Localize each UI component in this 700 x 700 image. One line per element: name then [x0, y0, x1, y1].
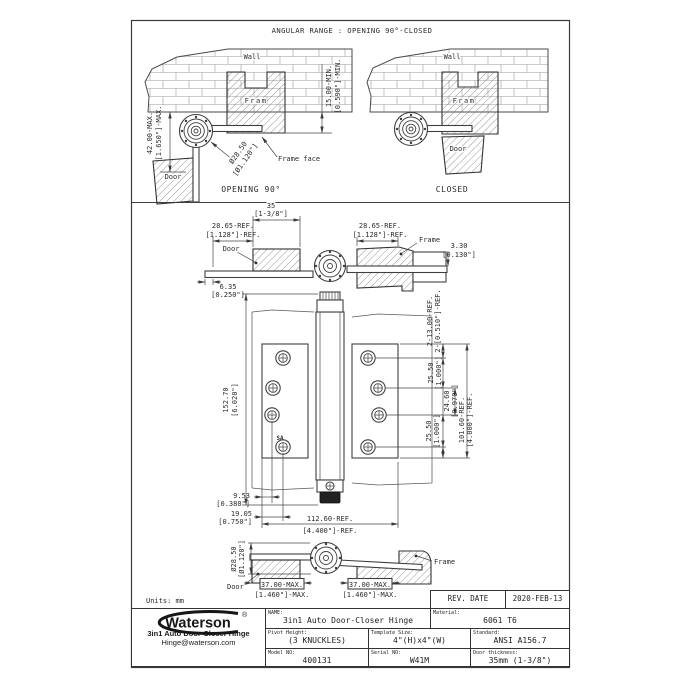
- label-door-section-bottom: Door: [227, 583, 244, 591]
- dim-2865-right-in: [1.128"]-REF.: [353, 231, 408, 239]
- standard-cell: Standard: ANSI A156.7: [471, 629, 569, 649]
- standard-label: Standard:: [471, 629, 569, 636]
- dim-953-mm: 9.53: [233, 492, 250, 500]
- label-sa: SA: [277, 436, 284, 442]
- caption-closed: CLOSED: [436, 185, 469, 194]
- drawing-page: ANGULAR RANGE : OPENING 90°-CLOSED Wall …: [0, 0, 700, 700]
- model-no-value: 400131: [266, 656, 368, 666]
- material-label: Material:: [431, 609, 569, 616]
- dim-2550-bot-in: [1.000"]: [433, 414, 441, 448]
- label-frame-section-top: Frame: [419, 236, 440, 244]
- dim-10160-mm: 101.60-REF.: [458, 397, 466, 443]
- material-cell: Material: 6061 T6: [431, 609, 569, 629]
- door-thickness-value: 35mm (1-3/8"): [471, 656, 569, 666]
- logo-cell: Waterson ® 3in1 Auto Door-Closer Hinge H…: [132, 609, 266, 666]
- dim-holes-in: 2-[0.510"]-REF.: [434, 289, 442, 352]
- model-no-label: Model NO:: [266, 649, 368, 656]
- dim-330-in: [0.130"]: [442, 251, 476, 259]
- model-no-cell: Model NO: 400131: [266, 649, 369, 666]
- dim-11260-mm: 112.60-REF.: [307, 515, 353, 523]
- label-frame-left: Fram: [245, 97, 268, 105]
- dim-35-mm: 35: [267, 202, 275, 210]
- dim-37-right-in: [1.460"]-MAX.: [343, 591, 398, 599]
- dim-953-in: [0.380"]: [216, 500, 250, 508]
- pivot-height-value: (3 KNUCKLES): [266, 636, 368, 646]
- dim-635-in: [0.250"]: [211, 291, 245, 299]
- dim-15270-in: [6.020"]: [231, 383, 239, 417]
- template-size-cell: Template Size: 4"(H)x4"(W): [369, 629, 471, 649]
- dim-2550-top-mm: 25.50: [427, 362, 435, 383]
- dim-2460-mm: 24.60: [443, 390, 451, 411]
- caption-opening-90: OPENING 90°: [221, 185, 281, 194]
- rev-date-value: 2020-FEB-13: [506, 591, 569, 608]
- dim-35-in: [1-3/8"]: [254, 210, 288, 218]
- rev-date-row: REV. DATE 2020-FEB-13: [430, 590, 570, 609]
- drawing-sheet: ANGULAR RANGE : OPENING 90°-CLOSED Wall …: [0, 0, 700, 700]
- template-size-value: 4"(H)x4"(W): [369, 636, 470, 646]
- units-label: Units: mm: [146, 597, 184, 605]
- serial-no-value: W41M: [369, 656, 470, 666]
- label-door-right: Door: [450, 145, 467, 153]
- dim-2550-top-in: [1.000"]: [435, 356, 443, 390]
- label-wall-right: Wall: [444, 53, 461, 61]
- label-door-section-top: Door: [223, 245, 240, 253]
- label-door-left: Door: [165, 173, 182, 181]
- title-block: Waterson ® 3in1 Auto Door-Closer Hinge H…: [131, 608, 570, 667]
- dim-1905-in: [0.750"]: [218, 518, 252, 526]
- material-value: 6061 T6: [431, 616, 569, 626]
- hinge-knuckle-section-bottom: [311, 543, 342, 574]
- name-label: NAME:: [266, 609, 430, 616]
- door-thickness-cell: Door thickness: 35mm (1-3/8"): [471, 649, 569, 666]
- pivot-height-label: Pivot Height:: [266, 629, 368, 636]
- dim-37-right-mm: 37.00-MAX.: [349, 581, 391, 589]
- dim-11260-in: [4.400"]-REF.: [303, 527, 358, 535]
- dim-15-min-mm: 15.00-MIN.: [325, 65, 333, 107]
- door-thickness-label: Door thickness:: [471, 649, 569, 656]
- rev-date-label: REV. DATE: [431, 591, 506, 608]
- logo-brand: Waterson: [165, 616, 231, 632]
- dim-10160-in: [4.000"]-REF.: [466, 393, 474, 448]
- hinge-knuckle-closed: [395, 113, 428, 146]
- barrel-insert: [320, 492, 340, 503]
- dim-dia-bottom-in: [Ø1.120"]: [238, 540, 246, 578]
- dim-635-mm: 6.35: [220, 283, 237, 291]
- label-frame-right: Fram: [453, 97, 476, 105]
- serial-no-label: Serial NO:: [369, 649, 470, 656]
- dim-15-min-in: [0.590"]-MIN.: [334, 59, 342, 114]
- dim-42-max-in: [1.650"]-MAX.: [155, 106, 163, 161]
- hinge-knuckle-opening90: [180, 115, 213, 148]
- dim-37-left-mm: 37.00-MAX.: [261, 581, 303, 589]
- waterson-logo: Waterson ®: [132, 609, 250, 636]
- name-value: 3in1 Auto Door-Closer Hinge: [266, 616, 430, 626]
- dim-37-left-in: [1.460"]-MAX.: [255, 591, 310, 599]
- name-cell: NAME: 3in1 Auto Door-Closer Hinge: [266, 609, 431, 629]
- dim-holes-mm: 2-13.00-REF.: [426, 296, 434, 347]
- dim-2865-left-in: [1.128"]-REF.: [206, 231, 261, 239]
- label-frame-face: Frame face: [278, 155, 320, 163]
- dim-1905-mm: 19.05: [231, 510, 252, 518]
- dim-dia-bottom-mm: Ø28.50: [230, 546, 238, 571]
- dim-330-mm: 3.30: [451, 242, 468, 250]
- serial-no-cell: Serial NO: W41M: [369, 649, 471, 666]
- standard-value: ANSI A156.7: [471, 636, 569, 646]
- dim-42-max-mm: 42.00-MAX.: [146, 112, 154, 154]
- hinge-knuckle-section-top: [315, 251, 346, 282]
- logo-email-line: Hinge@waterson.com: [162, 638, 236, 647]
- dim-2865-left-mm: 28.65-REF.: [212, 222, 254, 230]
- template-size-label: Template Size:: [369, 629, 470, 636]
- sheet-title: ANGULAR RANGE : OPENING 90°-CLOSED: [272, 26, 433, 35]
- dim-15270-mm: 152.70: [222, 387, 230, 412]
- label-wall-left: Wall: [244, 53, 261, 61]
- dim-2865-right-mm: 28.65-REF.: [359, 222, 401, 230]
- label-frame-section-bottom: Frame: [434, 558, 455, 566]
- dim-2550-bot-mm: 25.50: [425, 420, 433, 441]
- pivot-height-cell: Pivot Height: (3 KNUCKLES): [266, 629, 369, 649]
- logo-registered-icon: ®: [242, 611, 248, 619]
